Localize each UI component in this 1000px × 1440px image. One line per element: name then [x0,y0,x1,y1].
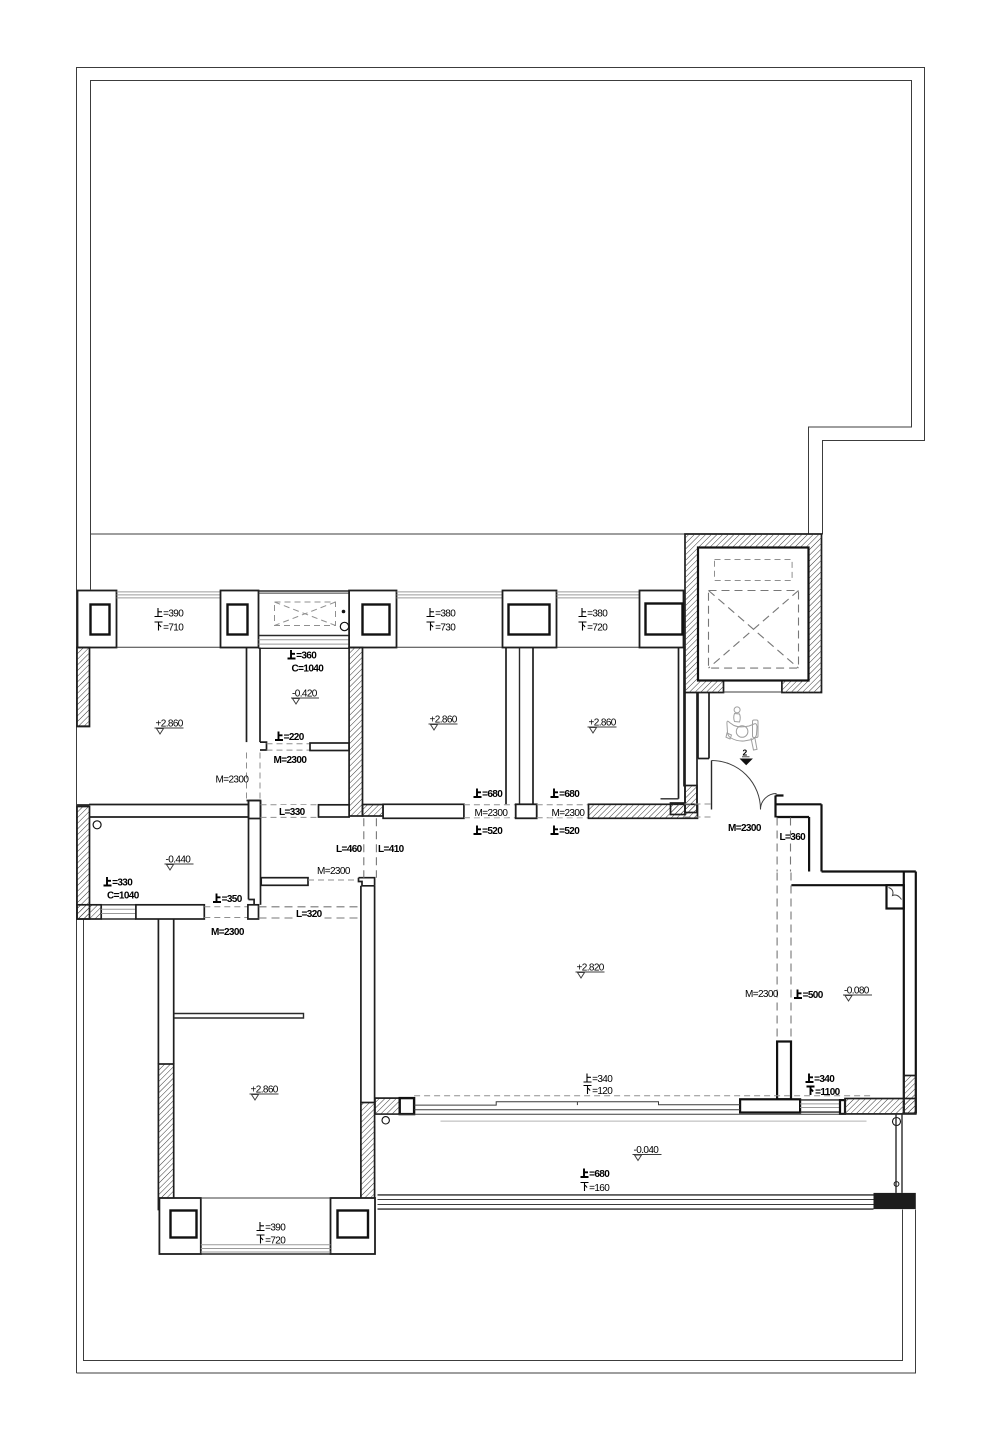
svg-text:=340: =340 [814,1074,835,1085]
svg-text:=1100: =1100 [815,1087,841,1098]
svg-text:=720: =720 [587,623,608,634]
svg-text:C=1040: C=1040 [292,664,325,675]
svg-text:M=2300: M=2300 [552,808,586,819]
svg-text:L=360: L=360 [780,832,807,843]
svg-text:=680: =680 [482,789,503,800]
svg-text:M=2300: M=2300 [216,775,250,786]
svg-text:=380: =380 [587,609,608,620]
svg-text:=220: =220 [284,732,305,743]
svg-text:M=2300: M=2300 [211,927,245,938]
svg-text:=680: =680 [559,789,580,800]
svg-text:2: 2 [743,748,748,758]
svg-text:L=320: L=320 [296,909,323,920]
svg-text:=390: =390 [265,1223,286,1234]
svg-text:=160: =160 [589,1183,610,1194]
svg-text:M=2300: M=2300 [728,823,762,834]
svg-text:M=2300: M=2300 [317,866,351,877]
svg-text:=520: =520 [559,826,580,837]
svg-text:=360: =360 [296,651,317,662]
svg-text:=710: =710 [163,623,184,634]
svg-text:=380: =380 [435,609,456,620]
svg-text:=680: =680 [589,1169,610,1180]
svg-text:=350: =350 [222,894,243,905]
svg-text:L=330: L=330 [279,807,306,818]
svg-text:=390: =390 [163,609,184,620]
svg-text:L=460: L=460 [336,844,363,855]
svg-text:=520: =520 [482,826,503,837]
svg-text:M=2300: M=2300 [475,808,509,819]
svg-text:C=1040: C=1040 [107,891,140,902]
svg-text:M=2300: M=2300 [745,989,779,1000]
svg-text:=120: =120 [592,1086,613,1097]
svg-text:L=410: L=410 [378,844,405,855]
svg-text:=340: =340 [592,1074,613,1085]
svg-text:=500: =500 [803,990,824,1001]
svg-text:=720: =720 [265,1236,286,1247]
svg-text:=730: =730 [435,623,456,634]
svg-text:=330: =330 [112,878,133,889]
svg-text:M=2300: M=2300 [274,755,308,766]
